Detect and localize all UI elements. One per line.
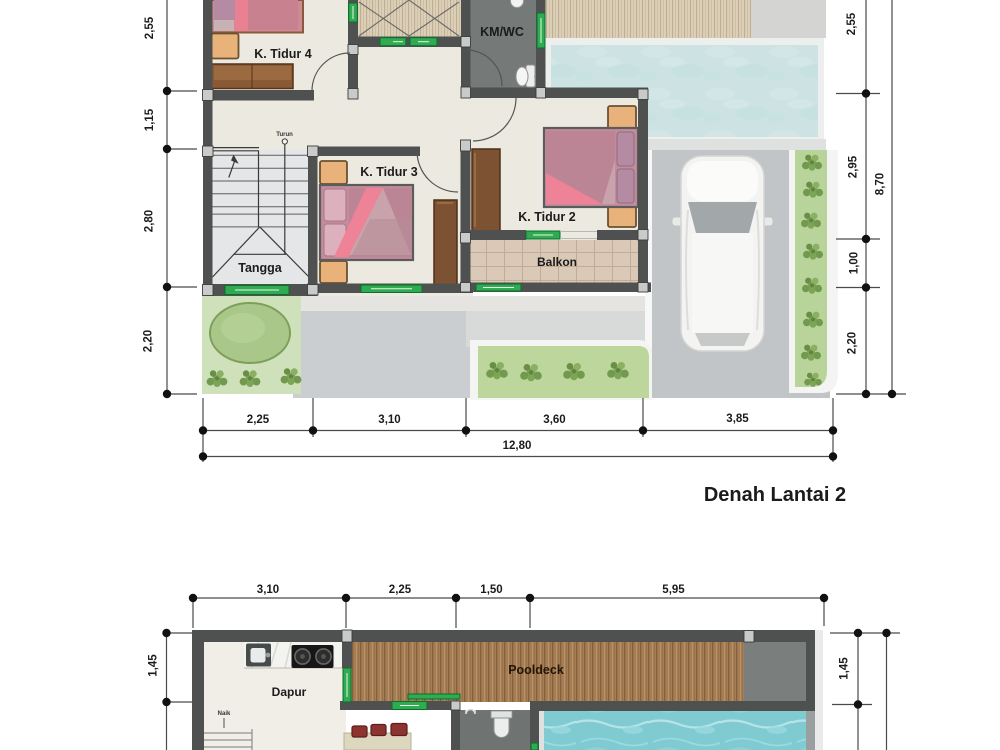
svg-text:K. Tidur 4: K. Tidur 4 — [254, 47, 311, 61]
svg-text:3,60: 3,60 — [543, 414, 565, 426]
svg-text:1,50: 1,50 — [480, 584, 502, 596]
svg-text:2,25: 2,25 — [247, 414, 270, 426]
svg-text:2,80: 2,80 — [144, 210, 156, 232]
svg-text:1,45: 1,45 — [839, 657, 851, 680]
svg-text:3,10: 3,10 — [257, 584, 279, 596]
svg-text:1,00: 1,00 — [849, 252, 861, 274]
svg-text:2,55: 2,55 — [144, 16, 156, 39]
svg-text:12,80: 12,80 — [503, 440, 532, 452]
svg-text:1,15: 1,15 — [144, 108, 156, 131]
svg-text:3,10: 3,10 — [378, 414, 400, 426]
svg-text:2,25: 2,25 — [389, 584, 412, 596]
svg-text:K. Tidur 3: K. Tidur 3 — [360, 165, 417, 179]
svg-text:Pooldeck: Pooldeck — [508, 663, 564, 677]
svg-text:2,95: 2,95 — [848, 155, 860, 178]
svg-text:Dapur: Dapur — [272, 685, 307, 699]
svg-text:Naik: Naik — [218, 711, 231, 717]
svg-text:8,70: 8,70 — [875, 173, 887, 195]
svg-text:5,95: 5,95 — [662, 584, 685, 596]
svg-text:1,45: 1,45 — [148, 654, 160, 677]
svg-text:2,55: 2,55 — [846, 12, 858, 35]
svg-text:Tangga: Tangga — [238, 261, 283, 275]
svg-text:KM/WC: KM/WC — [480, 25, 524, 39]
svg-text:K. Tidur 2: K. Tidur 2 — [518, 210, 575, 224]
svg-text:Denah Lantai 2: Denah Lantai 2 — [704, 484, 846, 506]
svg-text:Balkon: Balkon — [537, 255, 577, 269]
svg-text:2,20: 2,20 — [847, 332, 859, 354]
svg-text:2,20: 2,20 — [143, 330, 155, 352]
svg-text:Turun: Turun — [276, 132, 293, 138]
svg-text:3,85: 3,85 — [726, 413, 749, 425]
